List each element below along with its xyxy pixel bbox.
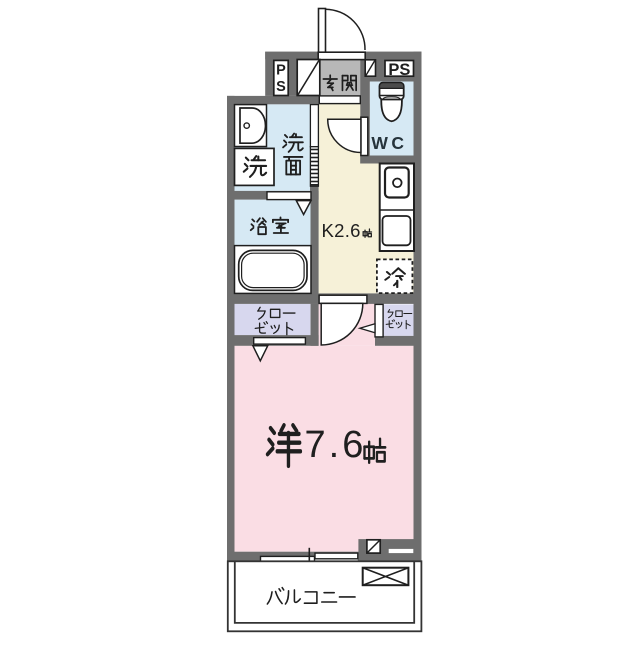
svg-text:K2.6: K2.6 [322,220,361,241]
svg-text:WC: WC [371,133,407,153]
svg-text:P: P [276,62,286,78]
svg-text:PS: PS [388,61,410,79]
svg-text:7.6: 7.6 [305,424,367,466]
svg-text:S: S [276,79,286,95]
